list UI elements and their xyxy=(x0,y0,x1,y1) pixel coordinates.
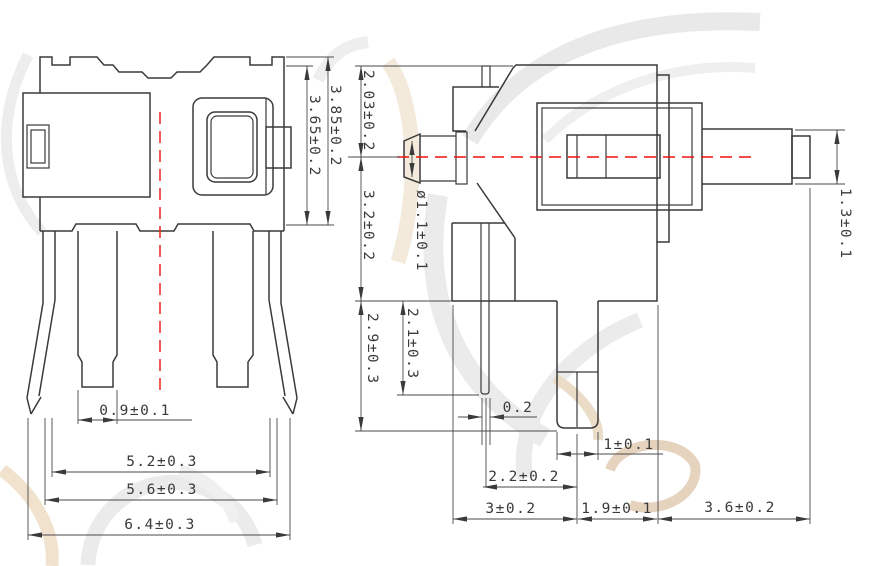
dim-front-outer-span: 5.6±0.3 xyxy=(126,482,198,498)
dim-side-terminal-length: 2.1±0.3 xyxy=(404,308,420,380)
dim-front-overall-width: 6.4±0.3 xyxy=(124,517,196,533)
front-view-dimensions: 0.9±0.1 5.2±0.3 5.6±0.3 6.4±0.3 3.65±0.2… xyxy=(28,57,343,540)
dim-side-terminal-thickness: 0.2 xyxy=(503,400,534,416)
dim-front-pin-width: 0.9±0.1 xyxy=(99,403,171,419)
dim-front-overall-height: 3.85±0.2 xyxy=(327,85,343,167)
side-view-drawing xyxy=(397,65,810,428)
dim-side-foot-length: 2.9±0.3 xyxy=(364,313,380,385)
dim-side-lower-height: 3.2±0.2 xyxy=(360,190,376,262)
dim-side-body-depth: 3±0.2 xyxy=(485,501,536,517)
dimension-drawing-svg: 0.9±0.1 5.2±0.3 5.6±0.3 6.4±0.3 3.65±0.2… xyxy=(0,0,869,566)
dim-side-boss-diameter: ø1.1±0.1 xyxy=(413,190,429,272)
dim-front-body-height: 3.65±0.2 xyxy=(306,95,322,177)
dim-side-shaft-height: 1.3±0.1 xyxy=(837,188,853,260)
dim-side-foot-width: 1±0.1 xyxy=(603,437,654,453)
dim-front-inner-span: 5.2±0.3 xyxy=(126,454,198,470)
dim-side-step-depth: 1.9±0.1 xyxy=(581,501,653,517)
dim-side-foot-offset: 2.2±0.2 xyxy=(488,469,560,485)
technical-drawing-canvas: 0.9±0.1 5.2±0.3 5.6±0.3 6.4±0.3 3.65±0.2… xyxy=(0,0,869,566)
front-view-drawing xyxy=(23,57,297,414)
dim-side-upper-height: 2.03±0.2 xyxy=(360,70,376,152)
dim-side-shaft-length: 3.6±0.2 xyxy=(704,500,776,516)
